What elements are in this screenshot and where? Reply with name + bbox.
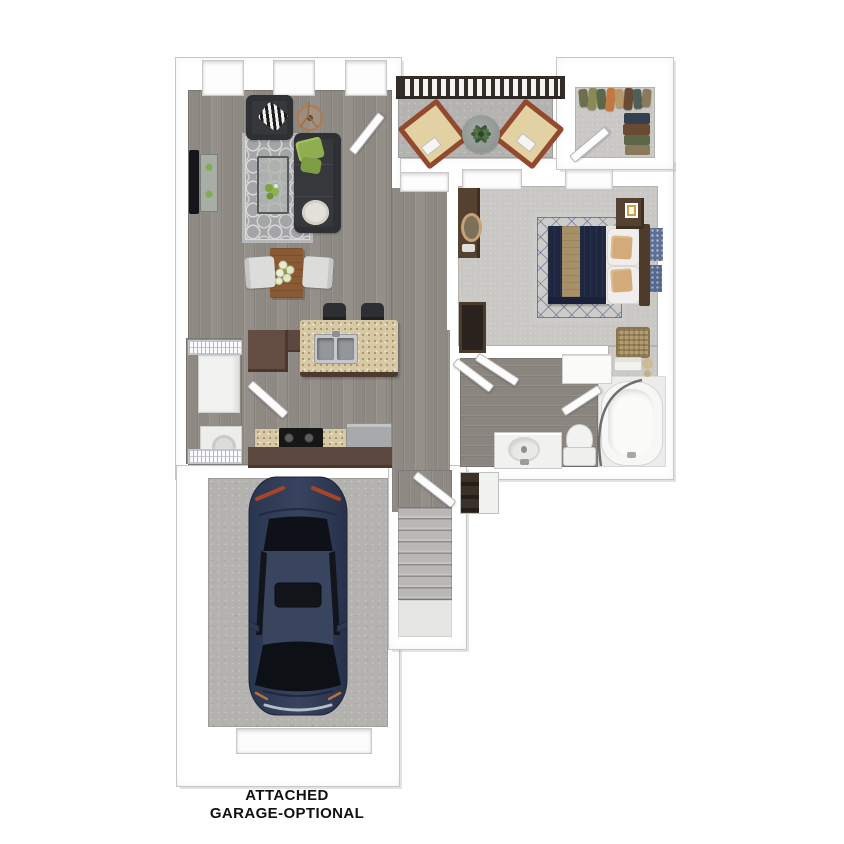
kitchen-l-cabinet-lower (248, 330, 288, 372)
book (421, 136, 442, 156)
dresser-tray (462, 244, 475, 252)
sink-faucet (332, 331, 340, 337)
towel-stack (614, 357, 642, 371)
bedroom-window-2 (565, 169, 613, 190)
wall-art (650, 228, 663, 261)
nightstand (616, 198, 644, 229)
sink-basin-right (337, 338, 354, 360)
living-window-1 (202, 60, 244, 96)
accent-pillow (610, 235, 632, 259)
bathtub (601, 381, 663, 466)
laundry-basket (616, 327, 650, 358)
refrigerator (346, 423, 392, 450)
balcony-table (462, 115, 500, 153)
car (243, 473, 353, 720)
stove (279, 428, 323, 449)
bar-stool (361, 303, 384, 321)
sink-basin-left (317, 338, 334, 360)
toilet-tank (563, 447, 596, 466)
stair-landing (398, 600, 452, 637)
laundry-wire-shelf-top (188, 340, 242, 355)
garage-door (236, 728, 372, 754)
stairs (398, 508, 452, 600)
laundry-cabinet (198, 355, 240, 413)
book (516, 133, 537, 153)
oval-mirror (461, 213, 482, 242)
caption: ATTACHED GARAGE-OPTIONAL (147, 787, 427, 823)
wall-tv (189, 150, 199, 214)
dining-nook-floor (392, 188, 447, 330)
round-pillow (302, 200, 329, 225)
accent-pillow (610, 268, 633, 292)
entry-closet (460, 472, 499, 514)
dining-chair-right (302, 256, 334, 289)
folded-clothes (624, 135, 650, 145)
bed-foot-fold (548, 297, 608, 304)
caption-line-1: ATTACHED (147, 787, 427, 805)
caption-line-2: GARAGE-OPTIONAL (147, 805, 427, 823)
shoe-shelves (461, 473, 479, 513)
bathtub-basin (608, 389, 654, 456)
media-console (200, 154, 218, 212)
hanging-clothes (641, 89, 652, 108)
balcony-railing (396, 76, 565, 99)
dining-nook-window (400, 172, 449, 192)
green-pillow (300, 156, 322, 174)
wardrobe (459, 302, 486, 353)
floor-plan: ATTACHED GARAGE-OPTIONAL (0, 0, 844, 844)
wall-art (650, 265, 662, 292)
dining-chair-left (244, 256, 276, 289)
folded-clothes (623, 124, 650, 135)
vanity-faucet (520, 459, 529, 465)
bar-stool (323, 303, 346, 321)
folded-clothes (625, 145, 650, 155)
sink-drain (521, 446, 527, 453)
bedroom-window-1 (462, 169, 522, 190)
candles (642, 358, 653, 369)
folded-clothes (624, 113, 650, 124)
picture-frame (625, 203, 638, 218)
laundry-wire-shelf-bottom (188, 449, 242, 464)
floor-lamp (297, 105, 323, 131)
tub-faucet (627, 452, 636, 458)
living-window-2 (273, 60, 315, 96)
kitchen-base-cabinets (248, 447, 392, 468)
living-window-3 (345, 60, 387, 96)
coffee-table (257, 156, 289, 214)
bathroom-vanity (494, 432, 562, 469)
linen-closet (562, 354, 612, 384)
headboard (639, 224, 650, 306)
island-sink (314, 334, 358, 364)
bed-tan-runner (562, 226, 580, 304)
